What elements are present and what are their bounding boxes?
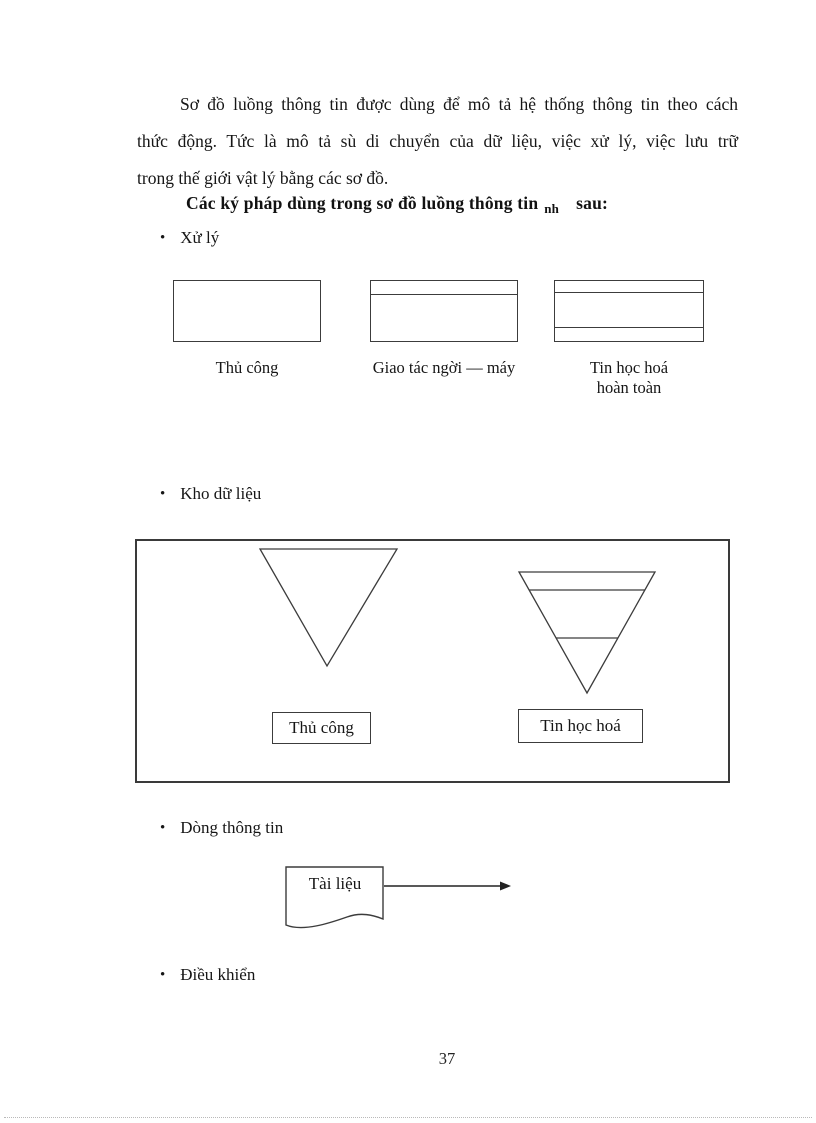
bullet-control: • Điều khiển bbox=[160, 965, 255, 985]
flow-arrow-head bbox=[500, 882, 511, 891]
process-symbol-manual bbox=[173, 280, 321, 342]
bullet-icon: • bbox=[160, 230, 165, 247]
section-heading-tail: sau: bbox=[576, 193, 608, 213]
flow-symbol-group: Tài liệu bbox=[285, 864, 515, 936]
bullet-icon: • bbox=[160, 820, 165, 837]
bullet-processing: • Xử lý bbox=[160, 228, 219, 248]
process-label-interactive: Giao tác ngời — máy bbox=[344, 358, 544, 378]
section-heading-subscript: nh bbox=[544, 201, 559, 216]
process-label-computerized-line2: hoàn toàn bbox=[544, 378, 714, 398]
bullet-icon: • bbox=[160, 967, 165, 984]
intro-paragraph: Sơ đồ luồng thông tin được dùng để mô tả… bbox=[137, 86, 738, 197]
document-symbol-label: Tài liệu bbox=[285, 874, 385, 894]
section-heading: Các ký pháp dùng trong sơ đồ luồng thông… bbox=[186, 193, 608, 217]
datastore-triangles-drawing bbox=[137, 541, 728, 781]
bullet-datastore-label: Kho dữ liệu bbox=[180, 484, 261, 504]
stripe-line bbox=[555, 327, 703, 328]
page-bottom-divider bbox=[4, 1117, 812, 1118]
process-label-computerized: Tin học hoá hoàn toàn bbox=[544, 358, 714, 398]
process-symbol-computerized bbox=[554, 280, 704, 342]
stripe-line bbox=[555, 292, 703, 293]
bullet-information-flow-label: Dòng thông tin bbox=[180, 818, 283, 838]
process-label-manual: Thủ công bbox=[163, 358, 331, 378]
paragraph-line: trong thế giới vật lý bằng các sơ đồ. bbox=[137, 160, 738, 197]
page-number: 37 bbox=[137, 1049, 757, 1069]
bullet-datastore: • Kho dữ liệu bbox=[160, 484, 261, 504]
bullet-information-flow: • Dòng thông tin bbox=[160, 818, 283, 838]
bullet-icon: • bbox=[160, 486, 165, 503]
triangle-manual bbox=[260, 549, 397, 666]
process-symbol-interactive bbox=[370, 280, 518, 342]
datastore-diagram-box: Thủ công Tin học hoá bbox=[135, 539, 730, 783]
process-label-computerized-line1: Tin học hoá bbox=[544, 358, 714, 378]
bullet-control-label: Điều khiển bbox=[180, 965, 255, 985]
datastore-label-computerized: Tin học hoá bbox=[518, 709, 643, 743]
document-page: Sơ đồ luồng thông tin được dùng để mô tả… bbox=[0, 0, 816, 1123]
stripe-line bbox=[371, 294, 517, 295]
datastore-label-manual: Thủ công bbox=[272, 712, 371, 744]
section-heading-main: Các ký pháp dùng trong sơ đồ luồng thông… bbox=[186, 193, 538, 213]
paragraph-line: Sơ đồ luồng thông tin được dùng để mô tả… bbox=[137, 86, 738, 123]
paragraph-line: thức động. Tức là mô tả sù di chuyển của… bbox=[137, 123, 738, 160]
bullet-processing-label: Xử lý bbox=[180, 228, 219, 248]
